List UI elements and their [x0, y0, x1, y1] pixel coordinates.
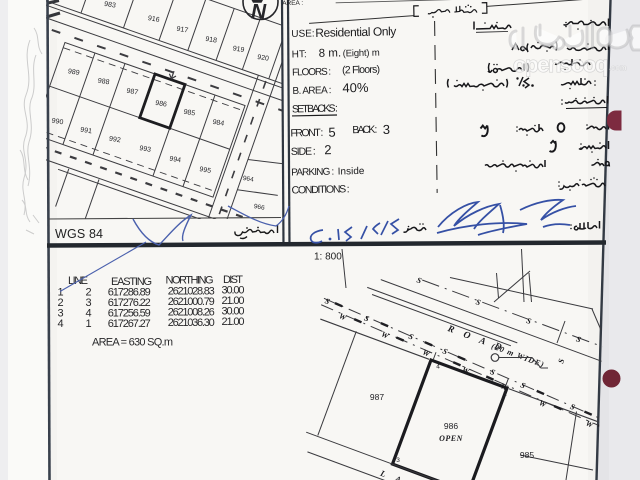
svg-text:AREA :: AREA :	[282, 0, 303, 7]
svg-text:WGS 84: WGS 84	[55, 227, 103, 241]
svg-text:3: 3	[383, 122, 391, 137]
svg-text:1: 1	[503, 391, 507, 398]
svg-text:4: 4	[436, 364, 440, 371]
svg-text:FRONT :: FRONT :	[290, 127, 323, 140]
svg-text:CONDITIONS :: CONDITIONS :	[291, 183, 349, 196]
svg-text:986: 986	[444, 421, 458, 431]
svg-text:40%: 40%	[342, 80, 369, 96]
svg-text:PARKING :: PARKING :	[291, 167, 334, 179]
svg-text:(2 Floors): (2 Floors)	[342, 64, 380, 77]
svg-text:FLOORS :: FLOORS :	[292, 67, 331, 79]
svg-text:1: 1	[86, 318, 92, 330]
svg-text:21.00: 21.00	[222, 316, 245, 328]
svg-text:SETBACKS :: SETBACKS :	[292, 102, 338, 115]
svg-text:8 m.: 8 m.	[319, 47, 342, 59]
svg-text:4: 4	[58, 318, 64, 330]
svg-text:3: 3	[396, 457, 400, 464]
svg-text:Inside: Inside	[338, 166, 365, 178]
svg-text:(Eight) m: (Eight) m	[343, 48, 380, 60]
svg-text:USE:: USE:	[291, 28, 315, 39]
svg-text:HT:: HT:	[292, 49, 307, 60]
svg-text:.com: .com	[609, 63, 627, 72]
svg-text:1: 800: 1: 800	[314, 252, 342, 263]
svg-text:985: 985	[520, 450, 534, 460]
svg-text:Residential Only: Residential Only	[315, 24, 396, 40]
svg-text:OPEN: OPEN	[439, 434, 464, 443]
svg-text:B. AREA :: B. AREA :	[292, 85, 331, 97]
svg-text:2: 2	[324, 142, 332, 157]
svg-text:BACK :: BACK :	[352, 124, 377, 137]
svg-text:SIDE :: SIDE :	[291, 145, 316, 158]
svg-text:2621036.30: 2621036.30	[168, 317, 215, 329]
svg-text:617267.27: 617267.27	[108, 318, 151, 330]
svg-text:5: 5	[328, 125, 336, 140]
svg-text:opensooq: opensooq	[513, 52, 609, 77]
svg-text:987: 987	[370, 392, 384, 402]
svg-text:AREA = 630 SQ.m: AREA = 630 SQ.m	[92, 337, 173, 349]
svg-text:N: N	[251, 1, 267, 24]
